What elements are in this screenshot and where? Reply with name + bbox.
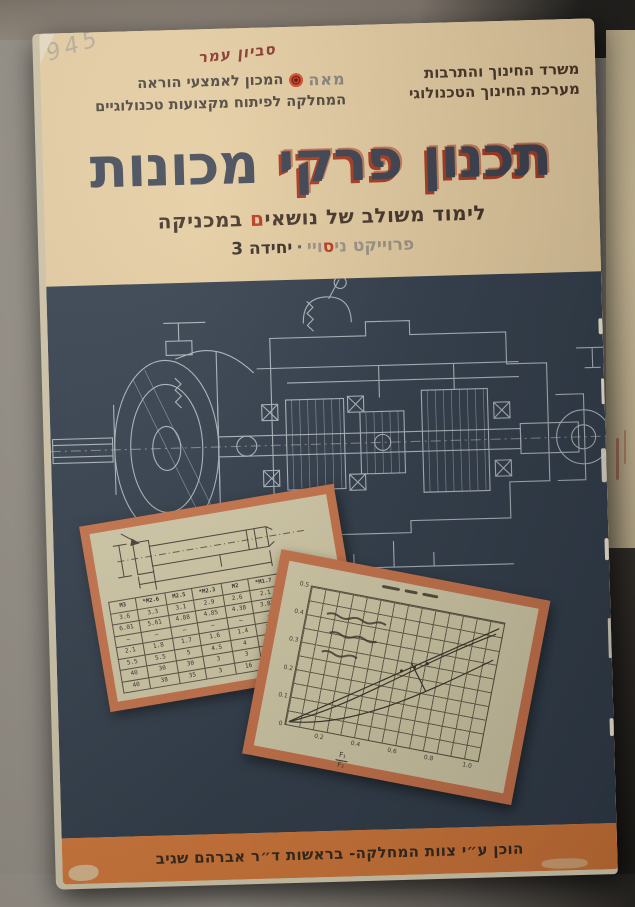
ministry-line-2: מערכת החינוך הטכנולוגי	[409, 79, 580, 104]
edge-wear-chip	[604, 538, 609, 560]
y-tick: 0.5	[297, 580, 310, 589]
subtitle-tail: במכניקה	[157, 207, 250, 234]
plot-wrap: 0.50.40.30.20.10 0.2 0.4 0.6 0.8 1.0 F₁	[284, 585, 505, 762]
y-tick: 0	[270, 718, 283, 727]
credit-line: הוכן ע״י צוות המחלקה- בראשות ד״ר אברהם ש…	[156, 840, 524, 868]
title-word-2: פרקי	[277, 128, 403, 196]
cover-main-panel: M1.6M1.7*M2M2.3*M2.5M2.6*M3e22.12.62.93.…	[46, 271, 616, 838]
ministry-block: משרד החינוך והתרבות מערכת החינוך הטכנולו…	[408, 59, 580, 104]
y-tick: 0.4	[291, 607, 304, 616]
graph-caption-smudge	[382, 585, 439, 599]
title-word-1: תכנון	[421, 124, 552, 193]
project-unit: יחידה 3	[231, 238, 293, 260]
caption-smudge-2	[404, 589, 417, 594]
subtitle-red-letter: ם	[250, 207, 265, 231]
project-red-letter: ס	[322, 237, 334, 257]
edge-wear-chip	[601, 448, 607, 482]
project-line: פרוייקט ניסויי·יחידה 3	[45, 229, 600, 264]
edge-wear-chip	[601, 378, 605, 404]
x-axis-fraction-label: F₁ F₂	[334, 751, 349, 770]
project-text: פרוייקט ני	[334, 234, 414, 256]
background-red-mark-2	[624, 430, 626, 464]
caption-smudge-1	[422, 593, 438, 599]
edge-wear-chip	[598, 318, 602, 334]
y-tick: 0.3	[286, 635, 299, 644]
x-tick: 1.0	[462, 761, 473, 770]
fraction-denominator: F₂	[334, 761, 347, 770]
ink-note: סביון עמר	[197, 40, 277, 67]
book-cover: 945 סביון עמר מאה המכון לאמצעי הוראה המח…	[32, 18, 618, 889]
publisher-block: מאה המכון לאמצעי הוראה המחלקה לפיתוח מקצ…	[94, 67, 346, 118]
x-tick: 0.8	[423, 754, 434, 763]
publisher-logo-text: מאה	[308, 67, 346, 91]
book-title: תכנון פרקי מכונות	[42, 122, 599, 202]
project-separator: ·	[296, 238, 303, 258]
graph-grid: 0.50.40.30.20.10 0.2 0.4 0.6 0.8 1.0 F₁	[284, 585, 505, 762]
y-tick: 0.2	[281, 663, 294, 672]
y-tick: 0.1	[275, 690, 288, 699]
edge-wear-chip	[609, 718, 614, 736]
x-tick: 0.4	[350, 740, 361, 749]
background-red-mark	[616, 438, 619, 480]
x-tick: 0.2	[313, 733, 324, 742]
target-logo-icon	[288, 73, 303, 88]
wear-patch-right	[541, 858, 587, 869]
x-tick: 0.6	[387, 747, 398, 756]
graph-card: 0.50.40.30.20.10 0.2 0.4 0.6 0.8 1.0 F₁	[242, 549, 550, 805]
background-object-right	[606, 30, 635, 562]
cover-header: 945 סביון עמר מאה המכון לאמצעי הוראה המח…	[39, 18, 601, 286]
project-text-tail: ויי	[307, 237, 323, 257]
title-word-3: מכונות	[89, 132, 259, 202]
cover-front: 945 סביון עמר מאה המכון לאמצעי הוראה המח…	[39, 18, 618, 884]
graph-card-paper: 0.50.40.30.20.10 0.2 0.4 0.6 0.8 1.0 F₁	[254, 561, 539, 794]
caption-smudge-3	[382, 585, 400, 591]
wear-patch-left	[68, 864, 98, 881]
publisher-institute: המכון לאמצעי הוראה	[137, 70, 284, 95]
photo: { "photo": { "handwritten_pencil": "945"…	[0, 0, 635, 907]
subtitle-text: לימוד משולב של נושאי	[264, 200, 486, 230]
